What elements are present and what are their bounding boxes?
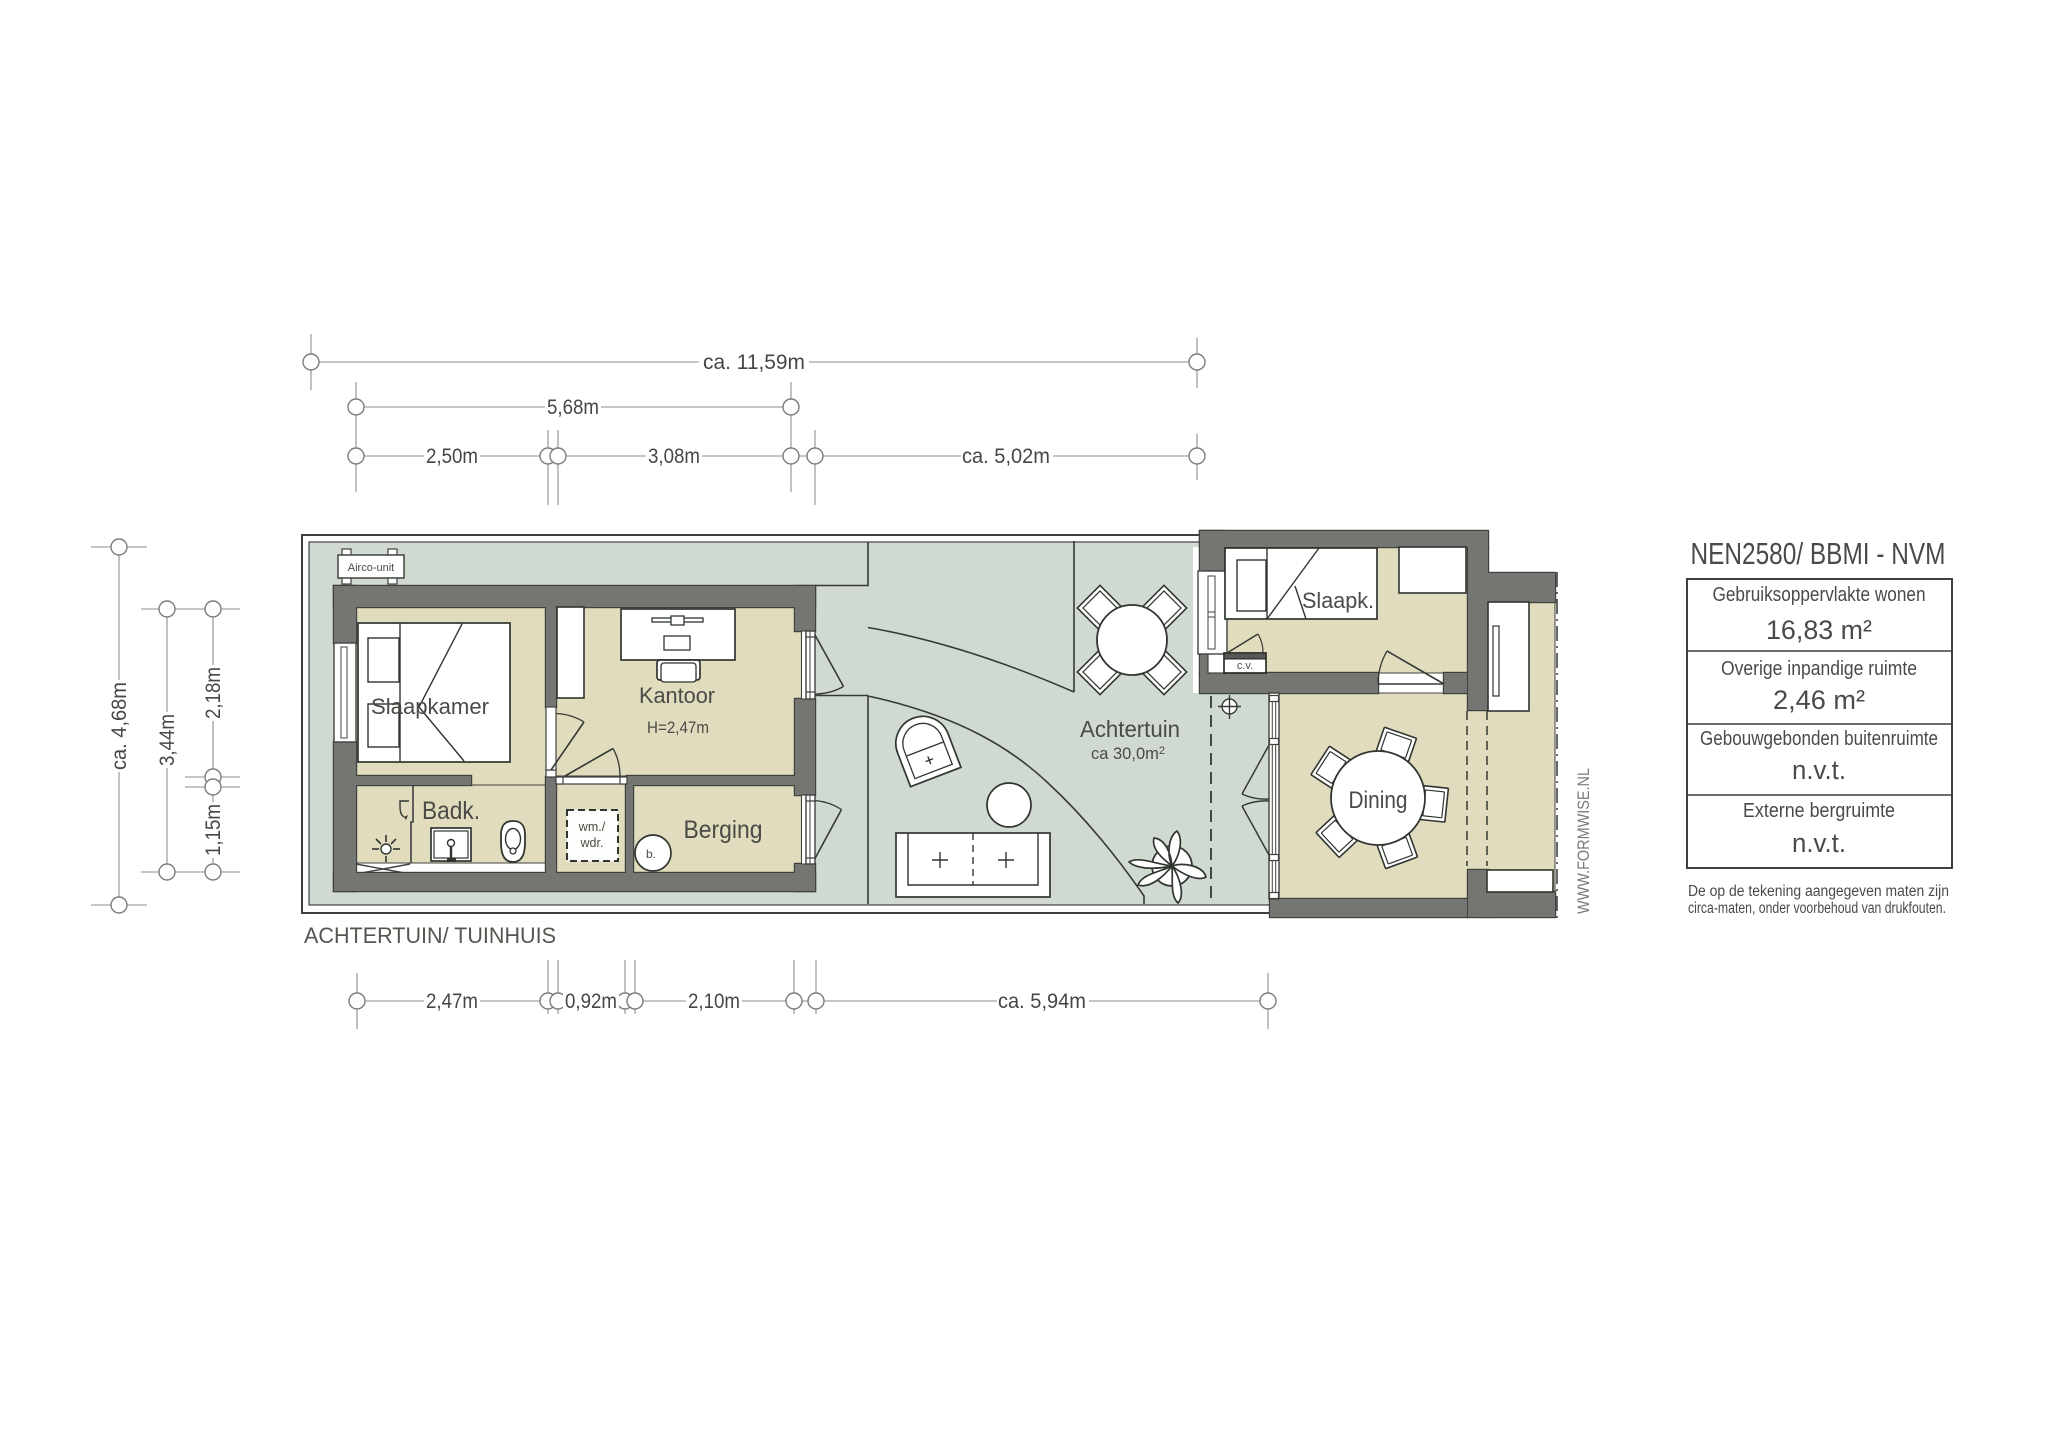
svg-text:ca. 5,94m: ca. 5,94m [998, 990, 1086, 1013]
svg-text:2,46 m²: 2,46 m² [1773, 685, 1865, 715]
svg-text:Externe bergruimte: Externe bergruimte [1743, 800, 1895, 822]
svg-text:c.v.: c.v. [1237, 660, 1253, 672]
svg-text:ACHTERTUIN/ TUINHUIS: ACHTERTUIN/ TUINHUIS [304, 923, 556, 948]
svg-text:Kantoor: Kantoor [639, 683, 715, 708]
svg-text:NEN2580/ BBMI - NVM: NEN2580/ BBMI - NVM [1691, 536, 1946, 571]
svg-text:0,92m: 0,92m [565, 990, 617, 1013]
svg-text:De op de tekening aangegeven m: De op de tekening aangegeven maten zijn [1688, 883, 1949, 900]
svg-text:2,18m: 2,18m [202, 667, 225, 719]
svg-text:Slaapk.: Slaapk. [1302, 588, 1374, 613]
svg-text:circa-maten, onder voorbehoud: circa-maten, onder voorbehoud van drukfo… [1688, 900, 1946, 917]
svg-text:ca. 5,02m: ca. 5,02m [962, 445, 1050, 468]
svg-text:WWW.FORMWISE.NL: WWW.FORMWISE.NL [1574, 768, 1593, 914]
svg-text:2,10m: 2,10m [688, 990, 740, 1013]
svg-text:1,15m: 1,15m [202, 804, 225, 856]
svg-text:Berging: Berging [684, 816, 763, 844]
svg-text:5,68m: 5,68m [547, 396, 599, 419]
svg-text:Gebruiksoppervlakte wonen: Gebruiksoppervlakte wonen [1713, 584, 1926, 606]
svg-text:wdr.: wdr. [580, 836, 604, 850]
svg-text:16,83 m²: 16,83 m² [1766, 615, 1872, 645]
svg-text:wm./: wm./ [578, 820, 606, 834]
svg-text:ca. 11,59m: ca. 11,59m [703, 351, 805, 374]
svg-text:ca. 4,68m: ca. 4,68m [108, 682, 131, 770]
svg-text:b.: b. [646, 847, 656, 861]
svg-text:Gebouwgebonden buitenruimte: Gebouwgebonden buitenruimte [1700, 728, 1938, 750]
svg-text:n.v.t.: n.v.t. [1792, 755, 1846, 785]
svg-text:Badk.: Badk. [422, 797, 480, 825]
svg-text:H=2,47m: H=2,47m [647, 719, 709, 737]
svg-text:Dining: Dining [1349, 787, 1408, 814]
svg-text:2,50m: 2,50m [426, 445, 478, 468]
svg-text:Slaapkamer: Slaapkamer [371, 694, 489, 719]
svg-text:2,47m: 2,47m [426, 990, 478, 1013]
svg-text:Achtertuin: Achtertuin [1080, 716, 1180, 742]
svg-text:Overige inpandige ruimte: Overige inpandige ruimte [1721, 658, 1917, 680]
svg-text:n.v.t.: n.v.t. [1792, 828, 1846, 858]
svg-text:ca 30,0m2: ca 30,0m2 [1091, 745, 1165, 763]
svg-text:Airco-unit: Airco-unit [348, 562, 394, 574]
svg-text:3,08m: 3,08m [648, 445, 700, 468]
svg-text:3,44m: 3,44m [156, 714, 179, 766]
